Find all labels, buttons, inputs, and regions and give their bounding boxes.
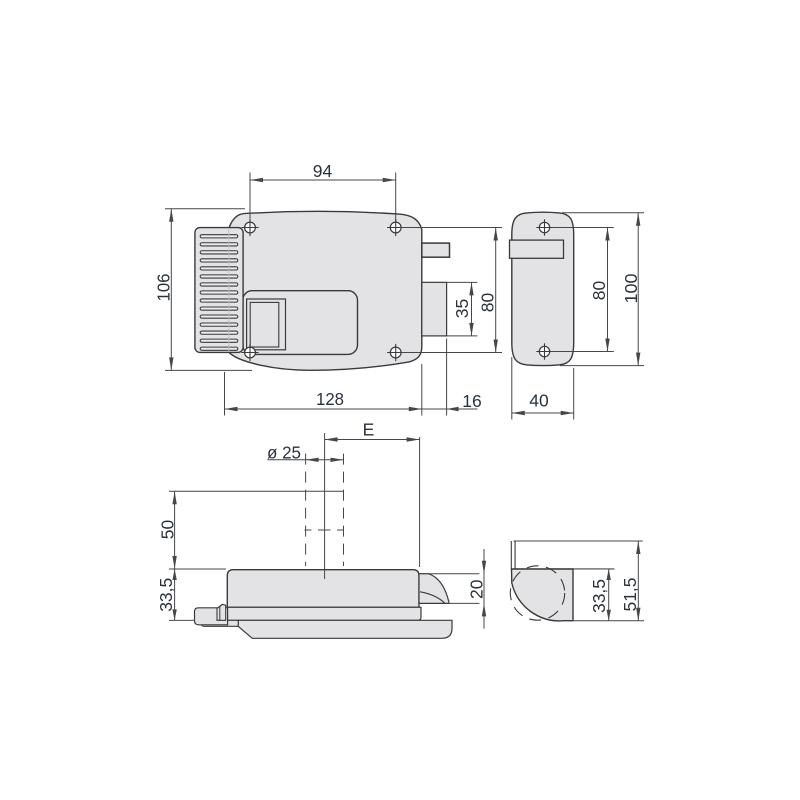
svg-text:80: 80 <box>478 293 498 313</box>
svg-text:E: E <box>363 419 375 439</box>
svg-text:80: 80 <box>589 281 609 301</box>
svg-text:40: 40 <box>529 391 549 411</box>
svg-text:51,5: 51,5 <box>620 578 640 612</box>
svg-text:50: 50 <box>157 520 177 540</box>
svg-text:94: 94 <box>313 161 333 181</box>
svg-text:33,5: 33,5 <box>589 579 609 613</box>
svg-text:ø 25: ø 25 <box>267 442 301 462</box>
svg-text:100: 100 <box>621 273 641 303</box>
svg-text:20: 20 <box>466 579 486 599</box>
svg-text:16: 16 <box>462 391 481 411</box>
svg-text:33,5: 33,5 <box>156 578 176 612</box>
svg-text:106: 106 <box>154 274 174 302</box>
svg-text:35: 35 <box>452 299 472 318</box>
svg-text:128: 128 <box>316 389 344 409</box>
